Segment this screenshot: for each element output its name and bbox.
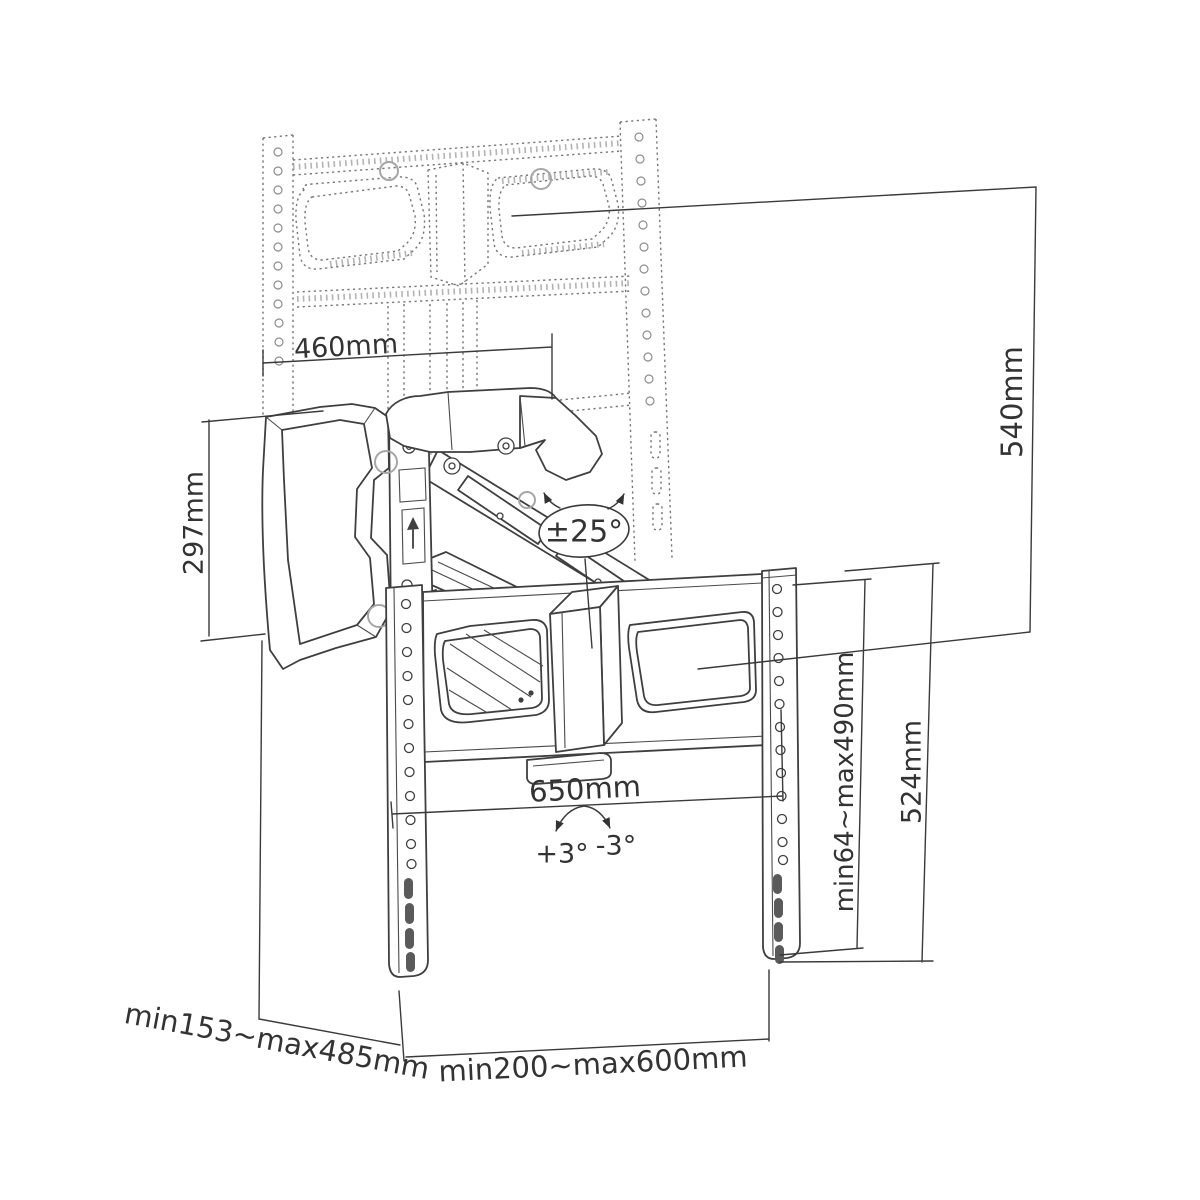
dim-label-650mm: 650mm: [528, 769, 641, 809]
dim-label-min64-max490: min64~max490mm: [830, 652, 860, 913]
mount-diagram-svg: 460mm 297mm 540mm ±25° 650mm +3°: [0, 0, 1200, 1200]
dim-label-540mm: 540mm: [995, 346, 1029, 458]
dim-label-min153-max485: min153~max485mm: [122, 996, 432, 1086]
dim-label-tilt-up: +3°: [535, 839, 588, 870]
dim-label-460mm: 460mm: [293, 329, 399, 366]
dim-label-297mm: 297mm: [179, 471, 210, 575]
dim-vesa-horizontal-range: min200~max600mm: [406, 970, 769, 1089]
dim-label-swivel: ±25°: [545, 515, 623, 550]
dim-label-min200-max600: min200~max600mm: [438, 1039, 749, 1088]
dim-extension-depth-range: min153~max485mm: [122, 641, 432, 1086]
annotation-tilt-angle: +3° -3°: [535, 806, 636, 870]
dim-label-524mm: 524mm: [897, 720, 928, 824]
dim-label-tilt-down: -3°: [596, 831, 636, 862]
technical-drawing-canvas: 460mm 297mm 540mm ±25° 650mm +3°: [0, 0, 1200, 1200]
